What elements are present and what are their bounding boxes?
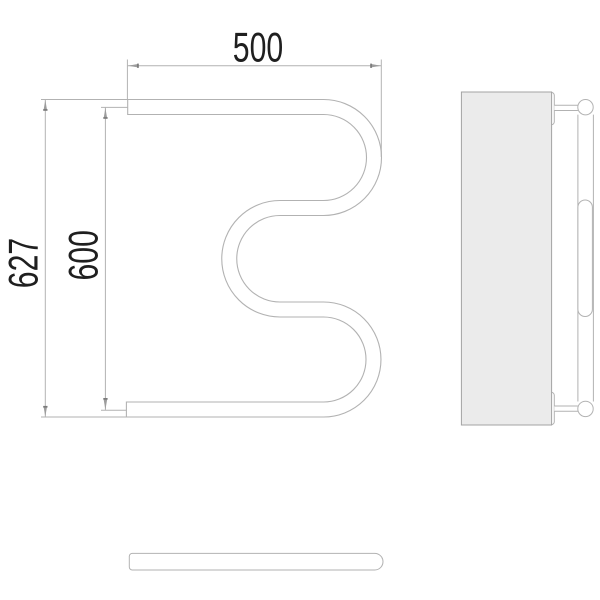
svg-text:600: 600: [59, 230, 106, 280]
svg-text:500: 500: [233, 24, 283, 71]
svg-text:627: 627: [0, 238, 46, 288]
